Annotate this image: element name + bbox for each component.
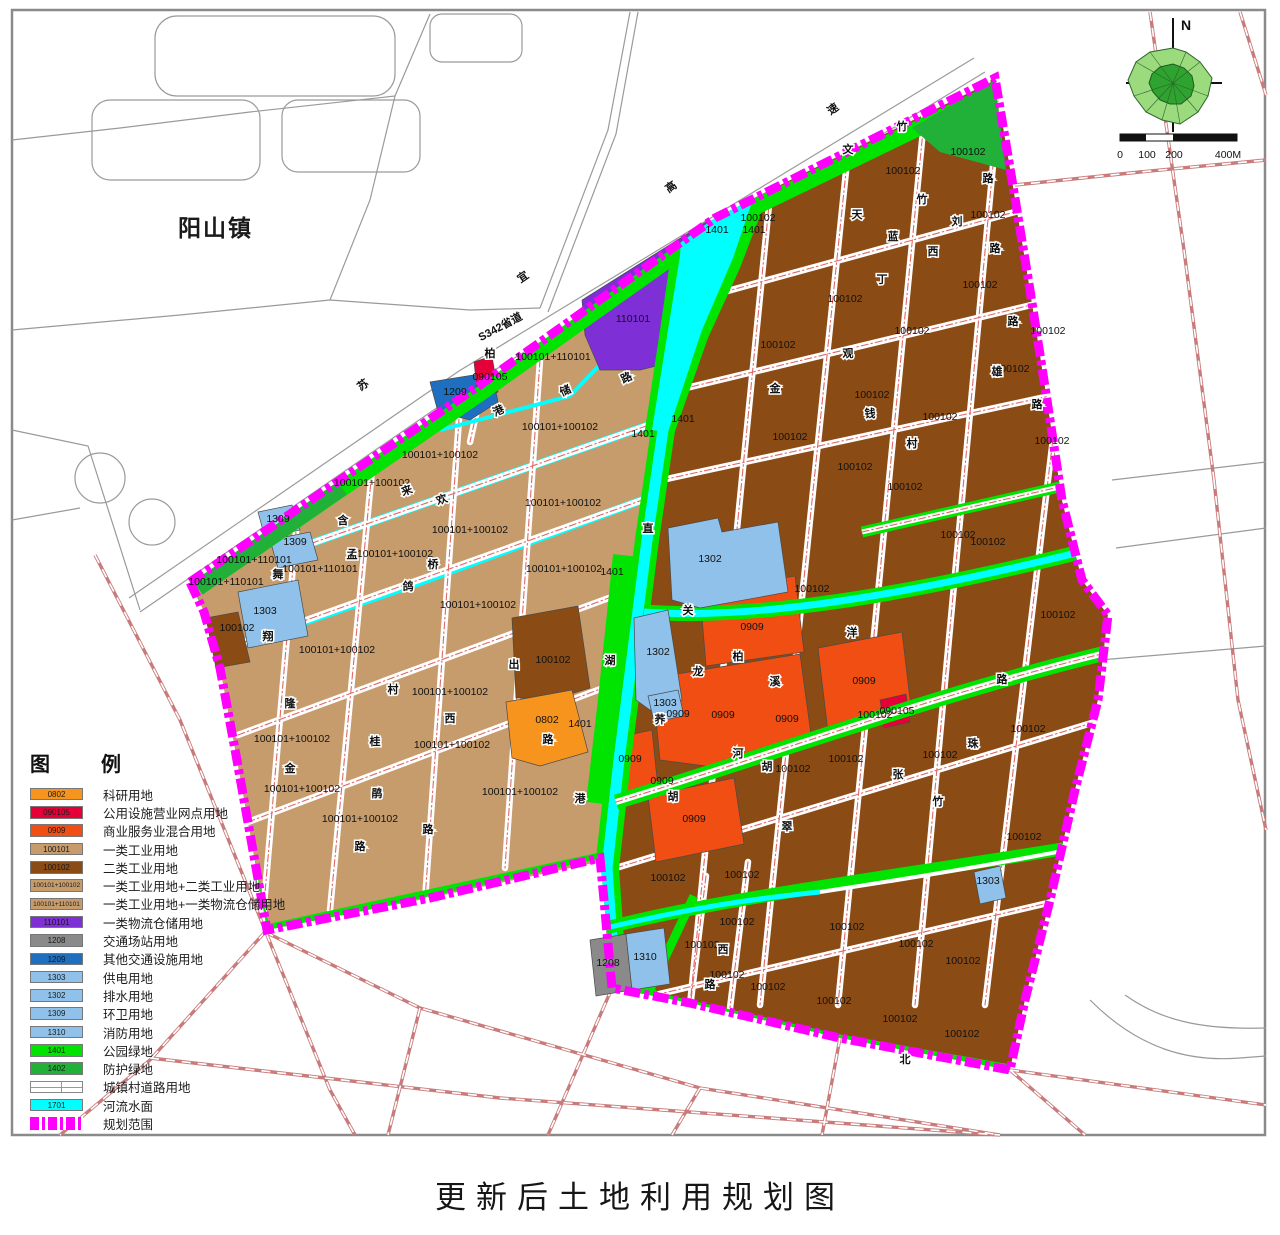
parcel-label: 100102	[794, 583, 829, 595]
parcel-label: 1401	[631, 428, 655, 440]
legend-item: 100101+110101一类工业用地+一类物流仓储用地	[30, 895, 330, 913]
legend-item-label: 公园绿地	[103, 1041, 153, 1060]
parcel-label: 1401	[742, 224, 766, 236]
parcel-label: 1302	[698, 553, 722, 565]
legend-item: 0802科研用地	[30, 785, 330, 803]
legend-swatch: 1303	[30, 971, 83, 984]
road-label: 路	[997, 672, 1009, 686]
parcel-label: 100102	[724, 869, 759, 881]
parcel-label: 100102	[970, 536, 1005, 548]
parcel-label: 1303	[653, 697, 677, 709]
parcel-label: 100102	[1010, 723, 1045, 735]
road-label: 港	[575, 791, 587, 805]
legend-item: 100102二类工业用地	[30, 858, 330, 876]
legend-item: 1302排水用地	[30, 986, 330, 1004]
parcel-label: 100102	[219, 622, 254, 634]
parcel-label: 100102	[950, 146, 985, 158]
parcel-label: 100102	[535, 654, 570, 666]
road-label: 文	[843, 142, 855, 156]
road-label: 含	[337, 513, 350, 527]
parcel-label: 0802	[535, 714, 559, 726]
parcel-label: 100101+100102	[525, 497, 601, 509]
parcel-label: 100102	[970, 209, 1005, 221]
legend-header-tu: 图	[30, 748, 51, 777]
legend-item-label: 河流水面	[103, 1096, 153, 1115]
legend-swatch: 1402	[30, 1062, 83, 1075]
parcel-label: 1310	[633, 951, 657, 963]
parcel-label: 100101+100102	[522, 421, 598, 433]
parcel-label: 100102	[887, 481, 922, 493]
road-label: 路	[1032, 397, 1044, 411]
parcel-label: 1303	[976, 875, 1000, 887]
parcel-label: 100102	[750, 981, 785, 993]
legend-item-label: 一类工业用地	[103, 840, 178, 859]
parcel-label: 100101+100102	[322, 813, 398, 825]
parcel-label: 0909	[711, 709, 735, 721]
planning-map-page: 1001021001021001021001021001021001021001…	[0, 0, 1280, 1235]
parcel-label: 100102	[882, 1013, 917, 1025]
parcel-label: 1209	[443, 386, 467, 398]
parcel-label: 100102	[719, 916, 754, 928]
parcel-label: 1208	[596, 957, 620, 969]
parcel-label: 0909	[682, 813, 706, 825]
parcel-label: 100102	[1040, 609, 1075, 621]
parcel-label: 100102	[837, 461, 872, 473]
parcel-label: 100102	[945, 955, 980, 967]
legend-swatch: 1310	[30, 1026, 83, 1039]
parcel-label: 1401	[705, 224, 729, 236]
legend-item-label: 消防用地	[103, 1023, 153, 1042]
road-label: 湖	[605, 653, 616, 667]
scale-tick: 400M	[1215, 149, 1241, 161]
parcel-label: 100102	[740, 212, 775, 224]
legend-item-label: 供电用地	[103, 968, 153, 987]
legend-swatch: 1209	[30, 953, 83, 966]
road-label: 丁	[877, 273, 888, 286]
road-label: 竹	[916, 192, 928, 206]
legend-item-label: 其他交通设施用地	[103, 949, 203, 968]
road-label: 张	[893, 767, 905, 781]
parcel-label: 100102	[1034, 435, 1069, 447]
road-label: 孟	[347, 547, 358, 561]
parcel-label: 0909	[618, 753, 642, 765]
legend-item-label: 城镇村道路用地	[103, 1077, 191, 1096]
legend-item-label: 环卫用地	[103, 1004, 153, 1023]
legend-swatch: 1302	[30, 989, 83, 1002]
parcel-label: 100102	[650, 872, 685, 884]
road-label: 观	[843, 347, 854, 360]
parcel-label: 100101+100102	[357, 548, 433, 560]
road-label: 路	[1008, 314, 1020, 328]
parcel-label: 100102	[827, 293, 862, 305]
parcel-label: 110101	[616, 313, 650, 325]
scale-tick: 100	[1138, 149, 1156, 161]
parcel-label: 0909	[740, 621, 764, 633]
parcel-label: 100101+100102	[440, 599, 516, 611]
parcel-label: 100101+100102	[402, 449, 478, 461]
parcel-label: 0909	[650, 775, 674, 787]
parcel-label: 100101+100102	[414, 739, 490, 751]
parcel-label: 100102	[1006, 831, 1041, 843]
parcel-1302-drainage	[668, 518, 788, 608]
legend-item-label: 公用设施营业网点用地	[103, 803, 228, 822]
parcel-label: 100101+110101	[188, 576, 264, 588]
legend-header-li: 例	[101, 748, 122, 777]
legend-item: 1401公园绿地	[30, 1041, 330, 1059]
legend-item: 1310消防用地	[30, 1023, 330, 1041]
legend-item-label: 一类物流仓储用地	[103, 913, 203, 932]
parcel-label: 100102	[1030, 325, 1065, 337]
legend-item-label: 交通场站用地	[103, 931, 178, 950]
parcel-label: 100101+100102	[526, 563, 602, 575]
legend-item-label: 科研用地	[103, 785, 153, 804]
parcel-label: 100102	[885, 165, 920, 177]
page-title: 更新后土地利用规划图	[0, 1172, 1280, 1217]
parcel-label: 100102	[829, 921, 864, 933]
legend-swatch: 1208	[30, 934, 83, 947]
legend-swatch: 1401	[30, 1044, 83, 1057]
legend-swatch	[30, 1117, 83, 1130]
parcel-label: 090105	[472, 371, 507, 383]
road-label: 桂	[369, 734, 381, 748]
parcel-label: 1401	[600, 566, 624, 578]
road-label: 村	[388, 682, 399, 696]
parcel-label: 100101+100102	[299, 644, 375, 656]
road-label: 路	[423, 822, 435, 836]
parcel-label: 090105	[879, 705, 914, 717]
parcel-label: 1303	[253, 605, 277, 617]
parcel-label: 100101+100102	[254, 733, 330, 745]
scale-tick: 200	[1165, 149, 1183, 161]
parcel-label: 100101+100102	[482, 786, 558, 798]
parcel-label: 100101+110101	[282, 563, 358, 575]
legend-swatch: 1701	[30, 1099, 83, 1112]
town-label: 阳山镇	[178, 215, 253, 241]
parcel-label: 1302	[646, 646, 670, 658]
parcel-label: 100102	[684, 939, 719, 951]
road-label: 关	[683, 603, 694, 617]
road-label: 直	[643, 521, 654, 535]
parcel-label: 100102	[962, 279, 997, 291]
road-label: 竹	[932, 794, 944, 808]
road-label: 蓝	[888, 229, 899, 243]
road-label: 荞	[655, 712, 667, 726]
legend-item-label: 防护绿地	[103, 1059, 153, 1078]
legend-swatch: 0909	[30, 824, 83, 837]
road-label: 刘	[952, 214, 963, 228]
parcel-label: 100101+110101	[515, 351, 591, 363]
road-label: 出	[509, 657, 520, 671]
road-label: 隆	[285, 696, 297, 710]
road-label: 柏	[733, 649, 744, 663]
legend-item: 0909商业服务业混合用地	[30, 822, 330, 840]
parcel-label: 100102	[894, 325, 929, 337]
parcel-label: 100102	[772, 431, 807, 443]
road-label: 村	[907, 436, 918, 450]
parcel-label: 0909	[775, 713, 799, 725]
road-label: 金	[769, 381, 782, 395]
legend-header: 图 例	[30, 748, 330, 777]
road-label: 西	[718, 943, 729, 956]
road-label: 西	[445, 712, 456, 725]
legend-item: 1309环卫用地	[30, 1005, 330, 1023]
legend-item: 110101一类物流仓储用地	[30, 913, 330, 931]
parcel-label: 100102	[760, 339, 795, 351]
road-label: 路	[983, 171, 995, 185]
road-label: 路	[543, 732, 555, 746]
legend-item: 1209其他交通设施用地	[30, 950, 330, 968]
legend: 图 例 0802科研用地090105公用设施营业网点用地0909商业服务业混合用…	[30, 748, 330, 1133]
road-label: 鸽	[403, 579, 414, 593]
legend-item: 1303供电用地	[30, 968, 330, 986]
road-label: 鹃	[372, 786, 383, 800]
road-label: 路	[355, 839, 367, 853]
legend-item: 1208交通场站用地	[30, 931, 330, 949]
road-label: 胡	[668, 789, 679, 803]
road-label: 龙	[692, 664, 704, 678]
parcel-label: 100102	[775, 763, 810, 775]
road-label: 路	[705, 977, 717, 991]
parcel-label: 1401	[568, 718, 592, 730]
parcel-label: 100102	[898, 938, 933, 950]
legend-swatch: 110101	[30, 916, 83, 929]
legend-swatch: 090105	[30, 806, 83, 819]
legend-swatch: 1309	[30, 1007, 83, 1020]
parcel-label: 100102	[922, 749, 957, 761]
road-label: 胡	[762, 759, 773, 773]
parcel-label: 100102	[922, 411, 957, 423]
legend-items: 0802科研用地090105公用设施营业网点用地0909商业服务业混合用地100…	[30, 785, 330, 1133]
parcel-label: 1309	[283, 536, 307, 548]
legend-swatch: 100102	[30, 861, 83, 874]
road-label: 翔	[262, 629, 274, 643]
road-label: 路	[990, 241, 1002, 255]
legend-item: 090105公用设施营业网点用地	[30, 803, 330, 821]
road-label: 河	[733, 746, 744, 760]
legend-item-label: 二类工业用地	[103, 858, 178, 877]
legend-item: 100101+100102一类工业用地+二类工业用地	[30, 876, 330, 894]
north-label: N	[1181, 17, 1191, 33]
legend-item: 1402防护绿地	[30, 1059, 330, 1077]
road-label: 雄	[991, 364, 1003, 378]
legend-swatch	[30, 1081, 83, 1094]
legend-item: 城镇村道路用地	[30, 1078, 330, 1096]
legend-item: 规划范围	[30, 1114, 330, 1132]
parcel-label: 1401	[671, 413, 695, 425]
legend-item-label: 一类工业用地+二类工业用地	[103, 876, 260, 895]
road-label: 西	[928, 245, 939, 258]
road-label: 洋	[847, 625, 858, 639]
road-label: 北	[900, 1052, 911, 1066]
legend-item-label: 规划范围	[103, 1114, 153, 1133]
parcel-label: 100102	[816, 995, 851, 1007]
legend-item-label: 一类工业用地+一类物流仓储用地	[103, 894, 285, 913]
legend-swatch: 100101+100102	[30, 879, 83, 892]
road-label: 柏	[485, 346, 496, 360]
legend-swatch: 100101+110101	[30, 898, 83, 911]
parcel-label: 100101+100102	[432, 524, 508, 536]
parcel-label: 100102	[854, 389, 889, 401]
parcel-label: 100102	[828, 753, 863, 765]
legend-item: 100101一类工业用地	[30, 840, 330, 858]
road-label: 钱	[865, 406, 876, 420]
road-label: 天	[852, 208, 864, 221]
legend-item-label: 商业服务业混合用地	[103, 821, 216, 840]
legend-item-label: 排水用地	[103, 986, 153, 1005]
parcel-label: 100101+110101	[216, 554, 292, 566]
parcel-label: 100101+100102	[412, 686, 488, 698]
road-label: 溪	[770, 674, 782, 688]
road-label: 珠	[968, 736, 980, 750]
legend-item: 1701河流水面	[30, 1096, 330, 1114]
parcel-label: 100102	[944, 1028, 979, 1040]
legend-swatch: 100101	[30, 843, 83, 856]
road-label: 竹	[896, 119, 908, 133]
road-label: 翠	[782, 820, 793, 833]
road-label: 舞	[273, 567, 284, 581]
parcel-label: 0909	[666, 708, 690, 720]
parcel-label: 1309	[266, 513, 290, 525]
legend-swatch: 0802	[30, 788, 83, 801]
parcel-label: 0909	[852, 675, 876, 687]
parcel-100102	[512, 606, 590, 698]
scale-tick: 0	[1117, 149, 1123, 161]
road-label: 桥	[428, 557, 440, 571]
